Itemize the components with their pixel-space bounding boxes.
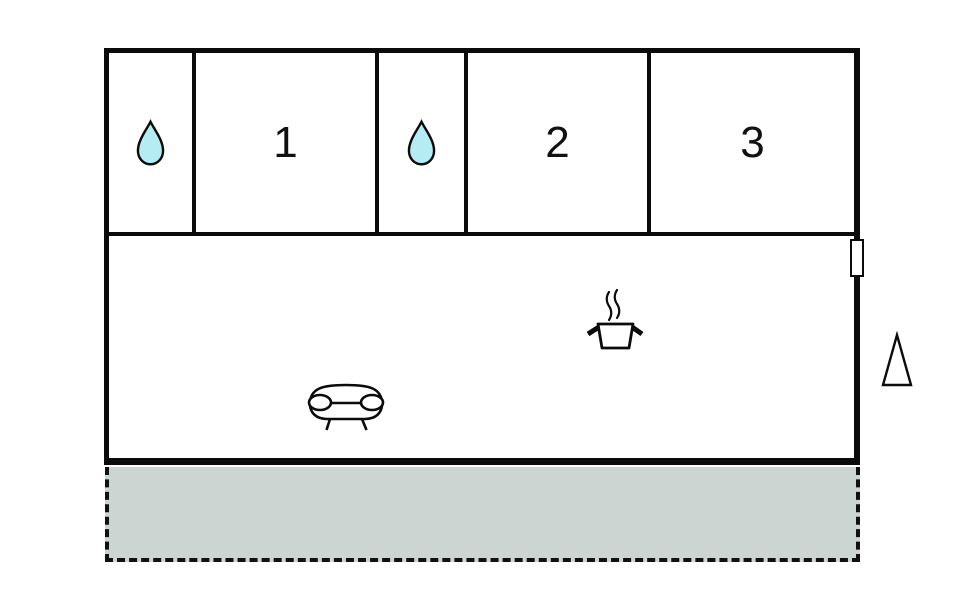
building-outline: 1 2 3 [104,48,860,465]
water-drop-icon [407,119,436,167]
room-2: 2 [468,53,647,232]
water-drop-icon [136,119,165,167]
terrace-area [105,467,860,562]
floor-plan: 1 2 3 [0,0,960,611]
entry-triangle-marker [880,331,914,389]
stove-pot-icon [583,286,645,354]
room-bath-1 [109,53,192,232]
wall-divider-horizontal [109,232,854,236]
room-3: 3 [651,53,854,232]
room-bath-2 [379,53,464,232]
room-2-label: 2 [545,121,569,165]
window-marker [850,239,864,277]
sofa-icon [303,380,389,434]
room-1: 1 [196,53,375,232]
room-1-label: 1 [273,121,297,165]
room-3-label: 3 [740,121,764,165]
